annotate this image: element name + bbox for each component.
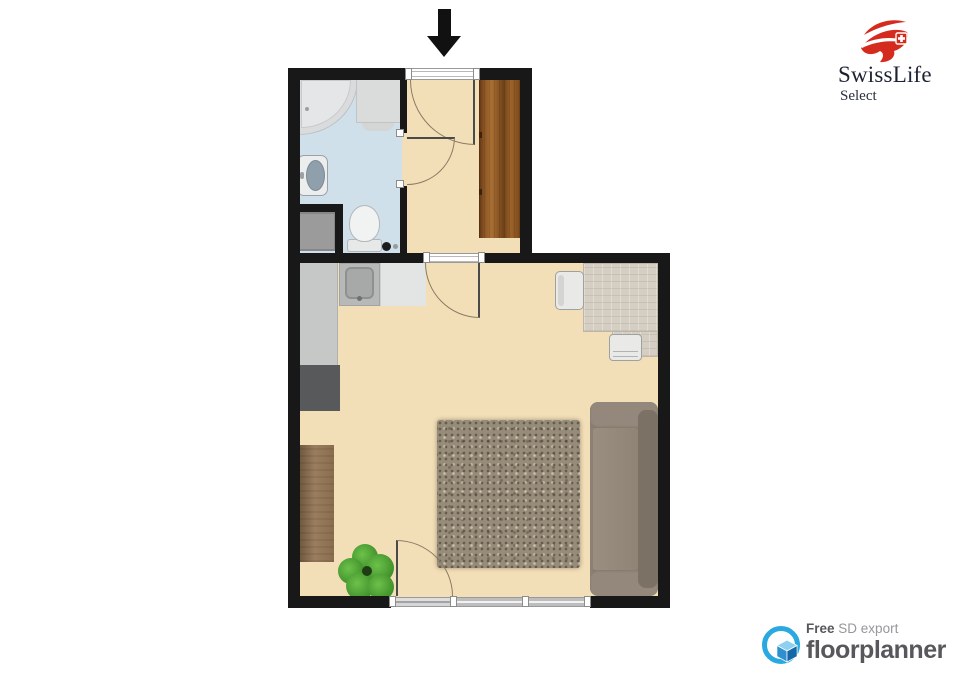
kitchen-tap xyxy=(357,296,362,301)
floorplanner-logo: Free SD export floorplanner xyxy=(756,620,956,672)
washbasin xyxy=(297,155,328,196)
door-post xyxy=(396,180,404,188)
toilet xyxy=(349,205,380,242)
wall-right-upper xyxy=(520,68,532,263)
door-post xyxy=(478,252,485,263)
refrigerator xyxy=(300,365,340,411)
washbasin-bowl xyxy=(306,160,325,191)
side-chair-detail xyxy=(613,351,638,357)
wall-bathroom-lower xyxy=(400,186,407,253)
entrance-arrow-icon xyxy=(427,36,461,57)
wall-divider-right xyxy=(482,253,670,263)
wall-bathroom-upper xyxy=(400,80,407,133)
floorplanner-cube-icon xyxy=(776,639,798,663)
swisslife-logo: SwissLife Select xyxy=(836,14,952,106)
kitchen-counter xyxy=(300,263,338,365)
washing-machine xyxy=(297,212,336,251)
entrance-arrow-shaft xyxy=(438,9,451,37)
niche-wall xyxy=(335,204,343,253)
floorplanner-export-line: Free SD export xyxy=(806,622,946,636)
toilet-brush xyxy=(393,244,398,249)
sofa-seat xyxy=(593,428,638,570)
floorplanner-circle-icon xyxy=(762,626,800,664)
swisslife-flame-icon xyxy=(856,16,912,64)
wall-divider-left xyxy=(288,253,427,263)
kitchen-sink-unit xyxy=(339,263,380,306)
sd-export-label: SD export xyxy=(838,621,898,636)
door-post xyxy=(473,68,480,80)
floorplanner-text-block: Free SD export floorplanner xyxy=(806,622,946,663)
side-chair xyxy=(609,334,642,361)
wall-left xyxy=(288,68,300,608)
living-room-door-sill xyxy=(425,253,484,263)
sofa xyxy=(590,402,658,596)
shower-cabinet-ledge xyxy=(362,123,394,131)
bathtub-drain xyxy=(305,107,309,111)
window-post xyxy=(584,596,591,607)
balcony-door-sill xyxy=(391,597,456,607)
desk-chair-backrest xyxy=(558,275,564,306)
door-post xyxy=(389,596,396,607)
door-post xyxy=(450,596,457,607)
kitchen-counter-top xyxy=(380,263,426,306)
shower-cabinet xyxy=(356,76,400,123)
door-post xyxy=(396,129,404,137)
desk xyxy=(583,263,658,332)
desk-chair xyxy=(555,271,584,310)
floor-drain xyxy=(382,242,391,251)
washbasin-tap xyxy=(300,172,304,179)
wall-bottom-right xyxy=(590,596,670,608)
wall-bottom-left xyxy=(288,596,391,608)
entrance-door-sill xyxy=(407,68,479,80)
floorplanner-wordmark: floorplanner xyxy=(806,638,946,663)
kitchen-sink xyxy=(345,267,374,299)
sideboard xyxy=(299,445,334,562)
rug xyxy=(437,420,580,568)
sofa-backrest xyxy=(638,410,658,588)
wall-top-left xyxy=(288,68,410,80)
door-post xyxy=(423,252,430,263)
swisslife-wordmark: SwissLife xyxy=(838,62,950,88)
plant xyxy=(338,544,396,601)
wardrobe-handle xyxy=(479,132,482,138)
window-post xyxy=(522,596,529,607)
free-label: Free xyxy=(806,621,835,636)
swisslife-product-label: Select xyxy=(840,88,877,105)
wardrobe xyxy=(479,77,520,238)
wall-right-main xyxy=(658,253,670,608)
plant-pot xyxy=(362,566,372,576)
wardrobe-handle xyxy=(479,189,482,195)
floorplan-export-canvas: SwissLife Select Free SD export floorpla… xyxy=(0,0,959,678)
door-post xyxy=(405,68,412,80)
